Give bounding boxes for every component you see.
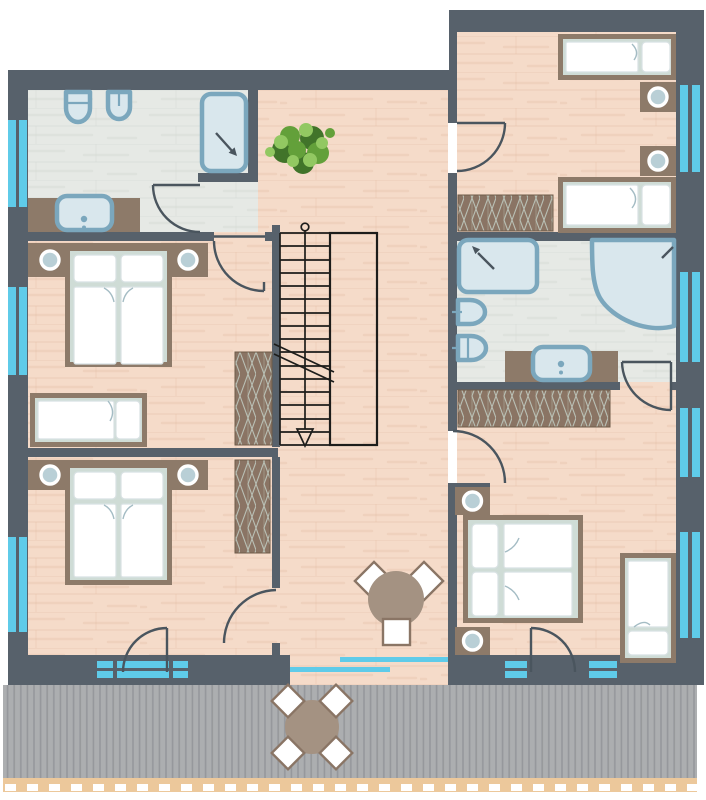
double-bed [65, 463, 172, 585]
pillow [642, 185, 670, 225]
wall-shower-nook-east [248, 90, 258, 178]
window-bottom-bedroom-left [97, 671, 188, 678]
pillow [74, 472, 116, 499]
wardrobe [458, 390, 610, 427]
pillow [74, 255, 116, 282]
nightstand-lamp [41, 251, 59, 269]
wall-bedrooms-left-separator [28, 448, 278, 457]
window-right-bedroom-a [692, 408, 700, 477]
window-left-bedroom-middle [19, 287, 27, 375]
door-jamb [113, 655, 117, 685]
shower [459, 240, 537, 292]
toilet [458, 300, 485, 324]
outer-wall-top-right [449, 10, 704, 32]
wall-staircase [272, 225, 280, 447]
pillow [628, 631, 668, 655]
wall-bathroom-r-south [457, 382, 620, 390]
nightstand-lamp [649, 88, 667, 106]
window-left-bedroom-bottom [19, 537, 27, 632]
outer-wall-bottom-left [8, 655, 290, 685]
window-right-bedroom-top [692, 85, 700, 172]
single-bed [30, 393, 147, 447]
nightstand-lamp [179, 251, 197, 269]
nightstand-lamp [464, 632, 482, 650]
duvet [74, 504, 116, 577]
pillow [116, 401, 140, 439]
sheet [38, 401, 114, 439]
nightstand-lamp [649, 152, 667, 170]
faucet-dot [559, 371, 563, 375]
wall-bath-bedroom-a [28, 232, 214, 241]
duvet [504, 572, 572, 616]
sheet [566, 42, 638, 72]
window-right-bathroom [692, 272, 700, 362]
wardrobe [235, 460, 270, 553]
pillow [472, 524, 498, 568]
single-bed [558, 177, 676, 233]
wall-hall-right-b [448, 173, 457, 431]
duvet [74, 287, 116, 364]
wall-shower-nook-south [198, 173, 258, 182]
pillow [642, 42, 670, 72]
floor-plan [0, 0, 706, 800]
single-bed [620, 553, 676, 663]
wardrobe [458, 195, 553, 231]
door-jamb [169, 655, 173, 685]
window-bottom-bedroom-right-a [505, 671, 529, 678]
window-left-bathroom [19, 120, 27, 207]
toilet [66, 92, 90, 122]
wardrobe [235, 352, 272, 445]
sliding-glass-door-panel [290, 667, 390, 672]
floor-plan-canvas [0, 0, 706, 800]
nightstand-lamp [464, 492, 482, 510]
terrace-railing [3, 778, 697, 792]
nightstand-lamp [179, 466, 197, 484]
chair [383, 619, 410, 645]
sink [57, 196, 112, 230]
wall-bedroom-bl-east-b [272, 643, 280, 655]
outer-wall-step [449, 32, 457, 90]
double-bed [65, 246, 172, 367]
outer-wall-top-left [8, 70, 457, 90]
sheet [566, 185, 638, 225]
shower [202, 94, 246, 171]
sheet [628, 561, 668, 627]
sliding-glass-door-panel [340, 657, 448, 662]
nightstand-lamp [41, 466, 59, 484]
faucet-dot [82, 226, 86, 230]
faucet-dot [81, 216, 87, 222]
pillow [472, 572, 498, 616]
bidet [458, 336, 486, 360]
wall-bedroom-bl-east-a [272, 457, 280, 588]
door-jamb [585, 655, 589, 685]
wall-hall-right-a [448, 90, 457, 123]
double-bed [463, 515, 583, 623]
duvet [121, 504, 163, 577]
window-right-bedroom-b [692, 532, 700, 638]
pillow [121, 255, 163, 282]
pillow [121, 472, 163, 499]
duvet [121, 287, 163, 364]
single-bed [558, 34, 676, 80]
window-bottom-bedroom-right-b [587, 671, 617, 678]
faucet-dot [558, 361, 564, 367]
